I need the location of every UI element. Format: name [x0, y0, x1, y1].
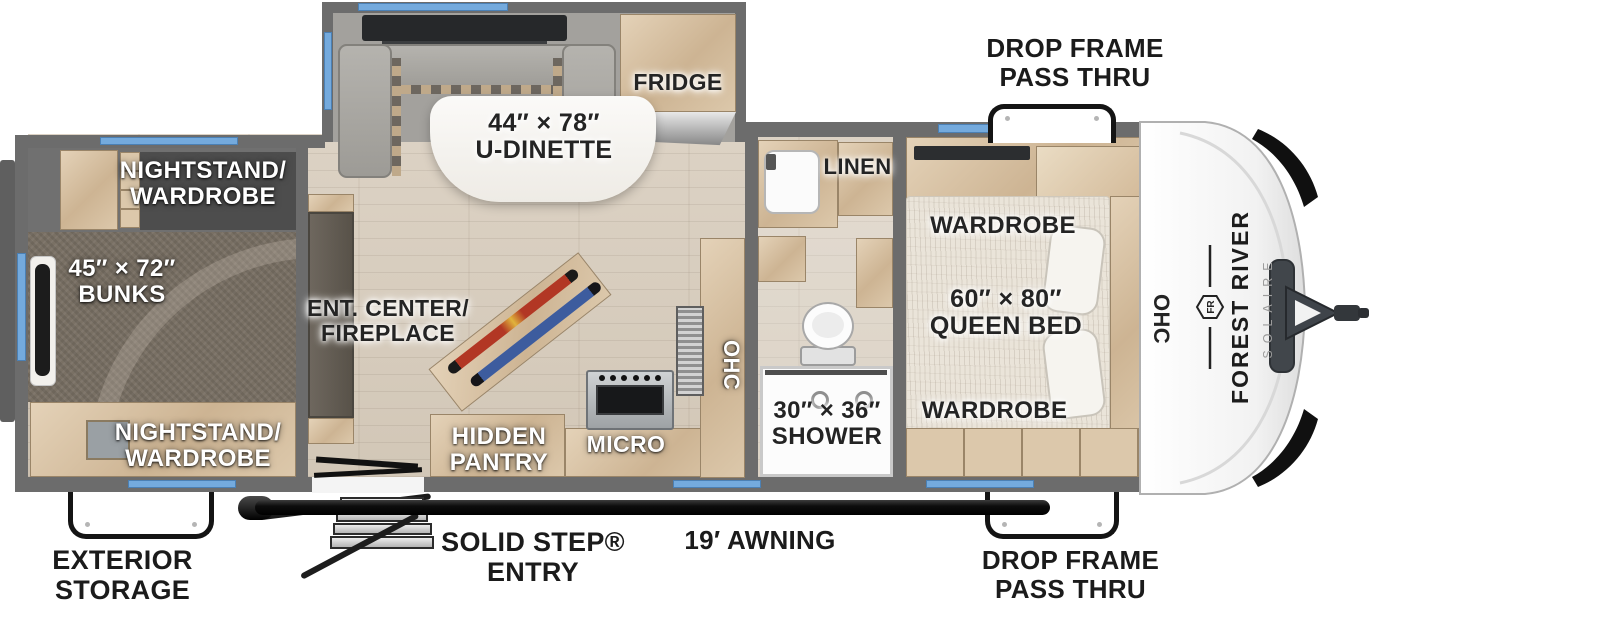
- bath-wall-right: [893, 134, 906, 477]
- hidden-pantry-label: HIDDEN PANTRY: [424, 424, 574, 475]
- brand-monogram: FR: [1206, 300, 1217, 314]
- rear-bumper: [0, 160, 15, 422]
- window-bunk-top: [100, 137, 238, 145]
- linen-label: LINEN: [810, 155, 905, 179]
- nightstand-top-label: NIGHTSTAND/ WARDROBE: [103, 158, 303, 209]
- dinette-size: 44″ × 78″: [488, 109, 600, 137]
- drop-frame-bracket-top: [988, 104, 1116, 143]
- fridge-label: FRIDGE: [626, 70, 730, 95]
- floorplan-canvas: FR FOREST RIVER SOLAIRE 44″ × 78″ U-DINE…: [0, 0, 1600, 617]
- bath-shelf: [758, 236, 806, 282]
- dinette-trim-left: [392, 58, 401, 176]
- window-bottom-kitchen: [673, 480, 761, 488]
- window-bottom-bunk: [128, 480, 236, 488]
- exterior-storage-annotation: EXTERIOR STORAGE: [30, 546, 215, 605]
- wardrobe-top-label: WARDROBE: [918, 213, 1088, 239]
- bedroom-cabinet-bottom: [906, 428, 1148, 477]
- bunks-label: 45″ × 72″ BUNKS: [48, 256, 196, 307]
- solid-step-annotation: SOLID STEP® ENTRY: [438, 528, 628, 587]
- ent-center-trim-top: [308, 194, 354, 212]
- drop-frame-top-annotation: DROP FRAME PASS THRU: [975, 34, 1175, 91]
- kitchen-ohc-label: OHC: [717, 323, 743, 407]
- window-rear: [17, 253, 26, 361]
- hitch: [1270, 260, 1369, 372]
- dinette-name: U-DINETTE: [476, 136, 613, 164]
- window-slide-left: [324, 32, 332, 110]
- ent-center-trim-bottom: [308, 418, 354, 444]
- drop-frame-bottom-annotation: DROP FRAME PASS THRU: [968, 546, 1173, 603]
- micro-label: MICRO: [570, 432, 682, 457]
- nightstand-bottom-label: NIGHTSTAND/ WARDROBE: [98, 420, 298, 471]
- shower-label: 30″ × 36″ SHOWER: [763, 398, 891, 449]
- toilet-bowl: [802, 302, 854, 350]
- window-bottom-bedroom: [926, 480, 1034, 488]
- window-slide-top: [358, 3, 508, 11]
- tambour-cabinet: [676, 306, 704, 396]
- bath-bench: [856, 238, 893, 308]
- dinette-seat-left: [338, 44, 392, 178]
- ent-center-label: ENT. CENTER/ FIREPLACE: [293, 296, 483, 345]
- bedroom-tv-bar: [914, 146, 1030, 160]
- wardrobe-bottom-label: WARDROBE: [912, 398, 1077, 424]
- shower-door-line: [765, 370, 887, 375]
- coupler: [1334, 305, 1360, 321]
- dinette-label: 44″ × 78″ U-DINETTE: [438, 110, 650, 164]
- awning-annotation: 19′ AWNING: [660, 526, 860, 555]
- dinette-trim-back: [401, 85, 553, 94]
- awning-bar: [255, 500, 1050, 515]
- brand-model: SOLAIRE: [1261, 255, 1275, 358]
- exterior-storage-bracket: [68, 492, 214, 539]
- tv: [362, 15, 567, 41]
- bath-faucet: [766, 154, 776, 170]
- oven-window: [596, 385, 664, 415]
- entry-step-4: [330, 536, 434, 549]
- queen-bed-label: 60″ × 80″ QUEEN BED: [922, 286, 1090, 340]
- bedroom-ohc-label: OHC: [1147, 277, 1173, 361]
- coupler-tip: [1358, 308, 1369, 318]
- stove: [586, 370, 674, 430]
- entry-opening: [312, 477, 424, 493]
- bath-wall-left: [745, 134, 758, 477]
- brand-name: FOREST RIVER: [1227, 210, 1253, 404]
